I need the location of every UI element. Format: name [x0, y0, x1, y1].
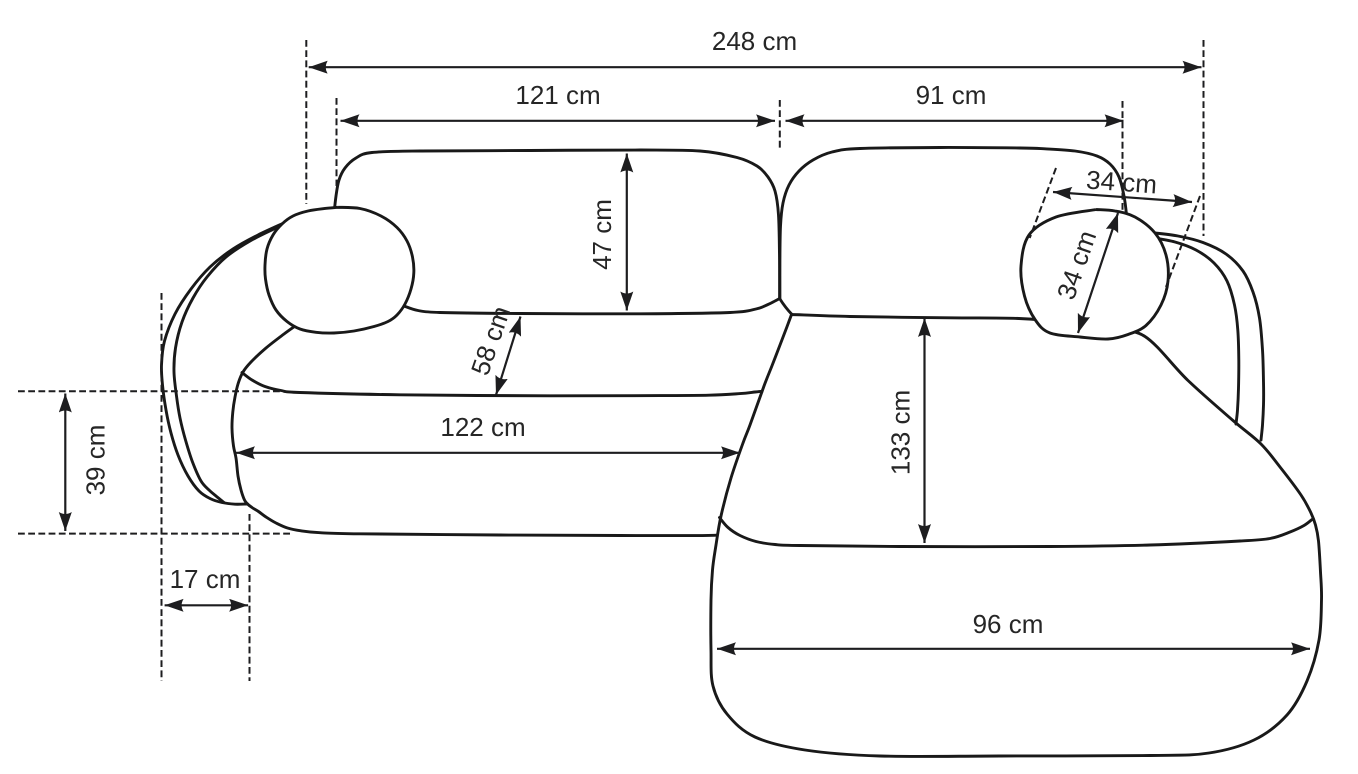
- svg-text:34 cm: 34 cm: [1085, 165, 1158, 200]
- svg-text:17 cm: 17 cm: [170, 564, 241, 594]
- svg-text:47 cm: 47 cm: [587, 199, 617, 270]
- svg-text:91 cm: 91 cm: [916, 80, 987, 110]
- svg-text:96 cm: 96 cm: [973, 609, 1044, 639]
- svg-text:248 cm: 248 cm: [712, 26, 797, 56]
- svg-text:39 cm: 39 cm: [81, 425, 111, 496]
- svg-text:133 cm: 133 cm: [886, 390, 916, 475]
- svg-text:121 cm: 121 cm: [515, 80, 600, 110]
- svg-text:122 cm: 122 cm: [440, 412, 525, 442]
